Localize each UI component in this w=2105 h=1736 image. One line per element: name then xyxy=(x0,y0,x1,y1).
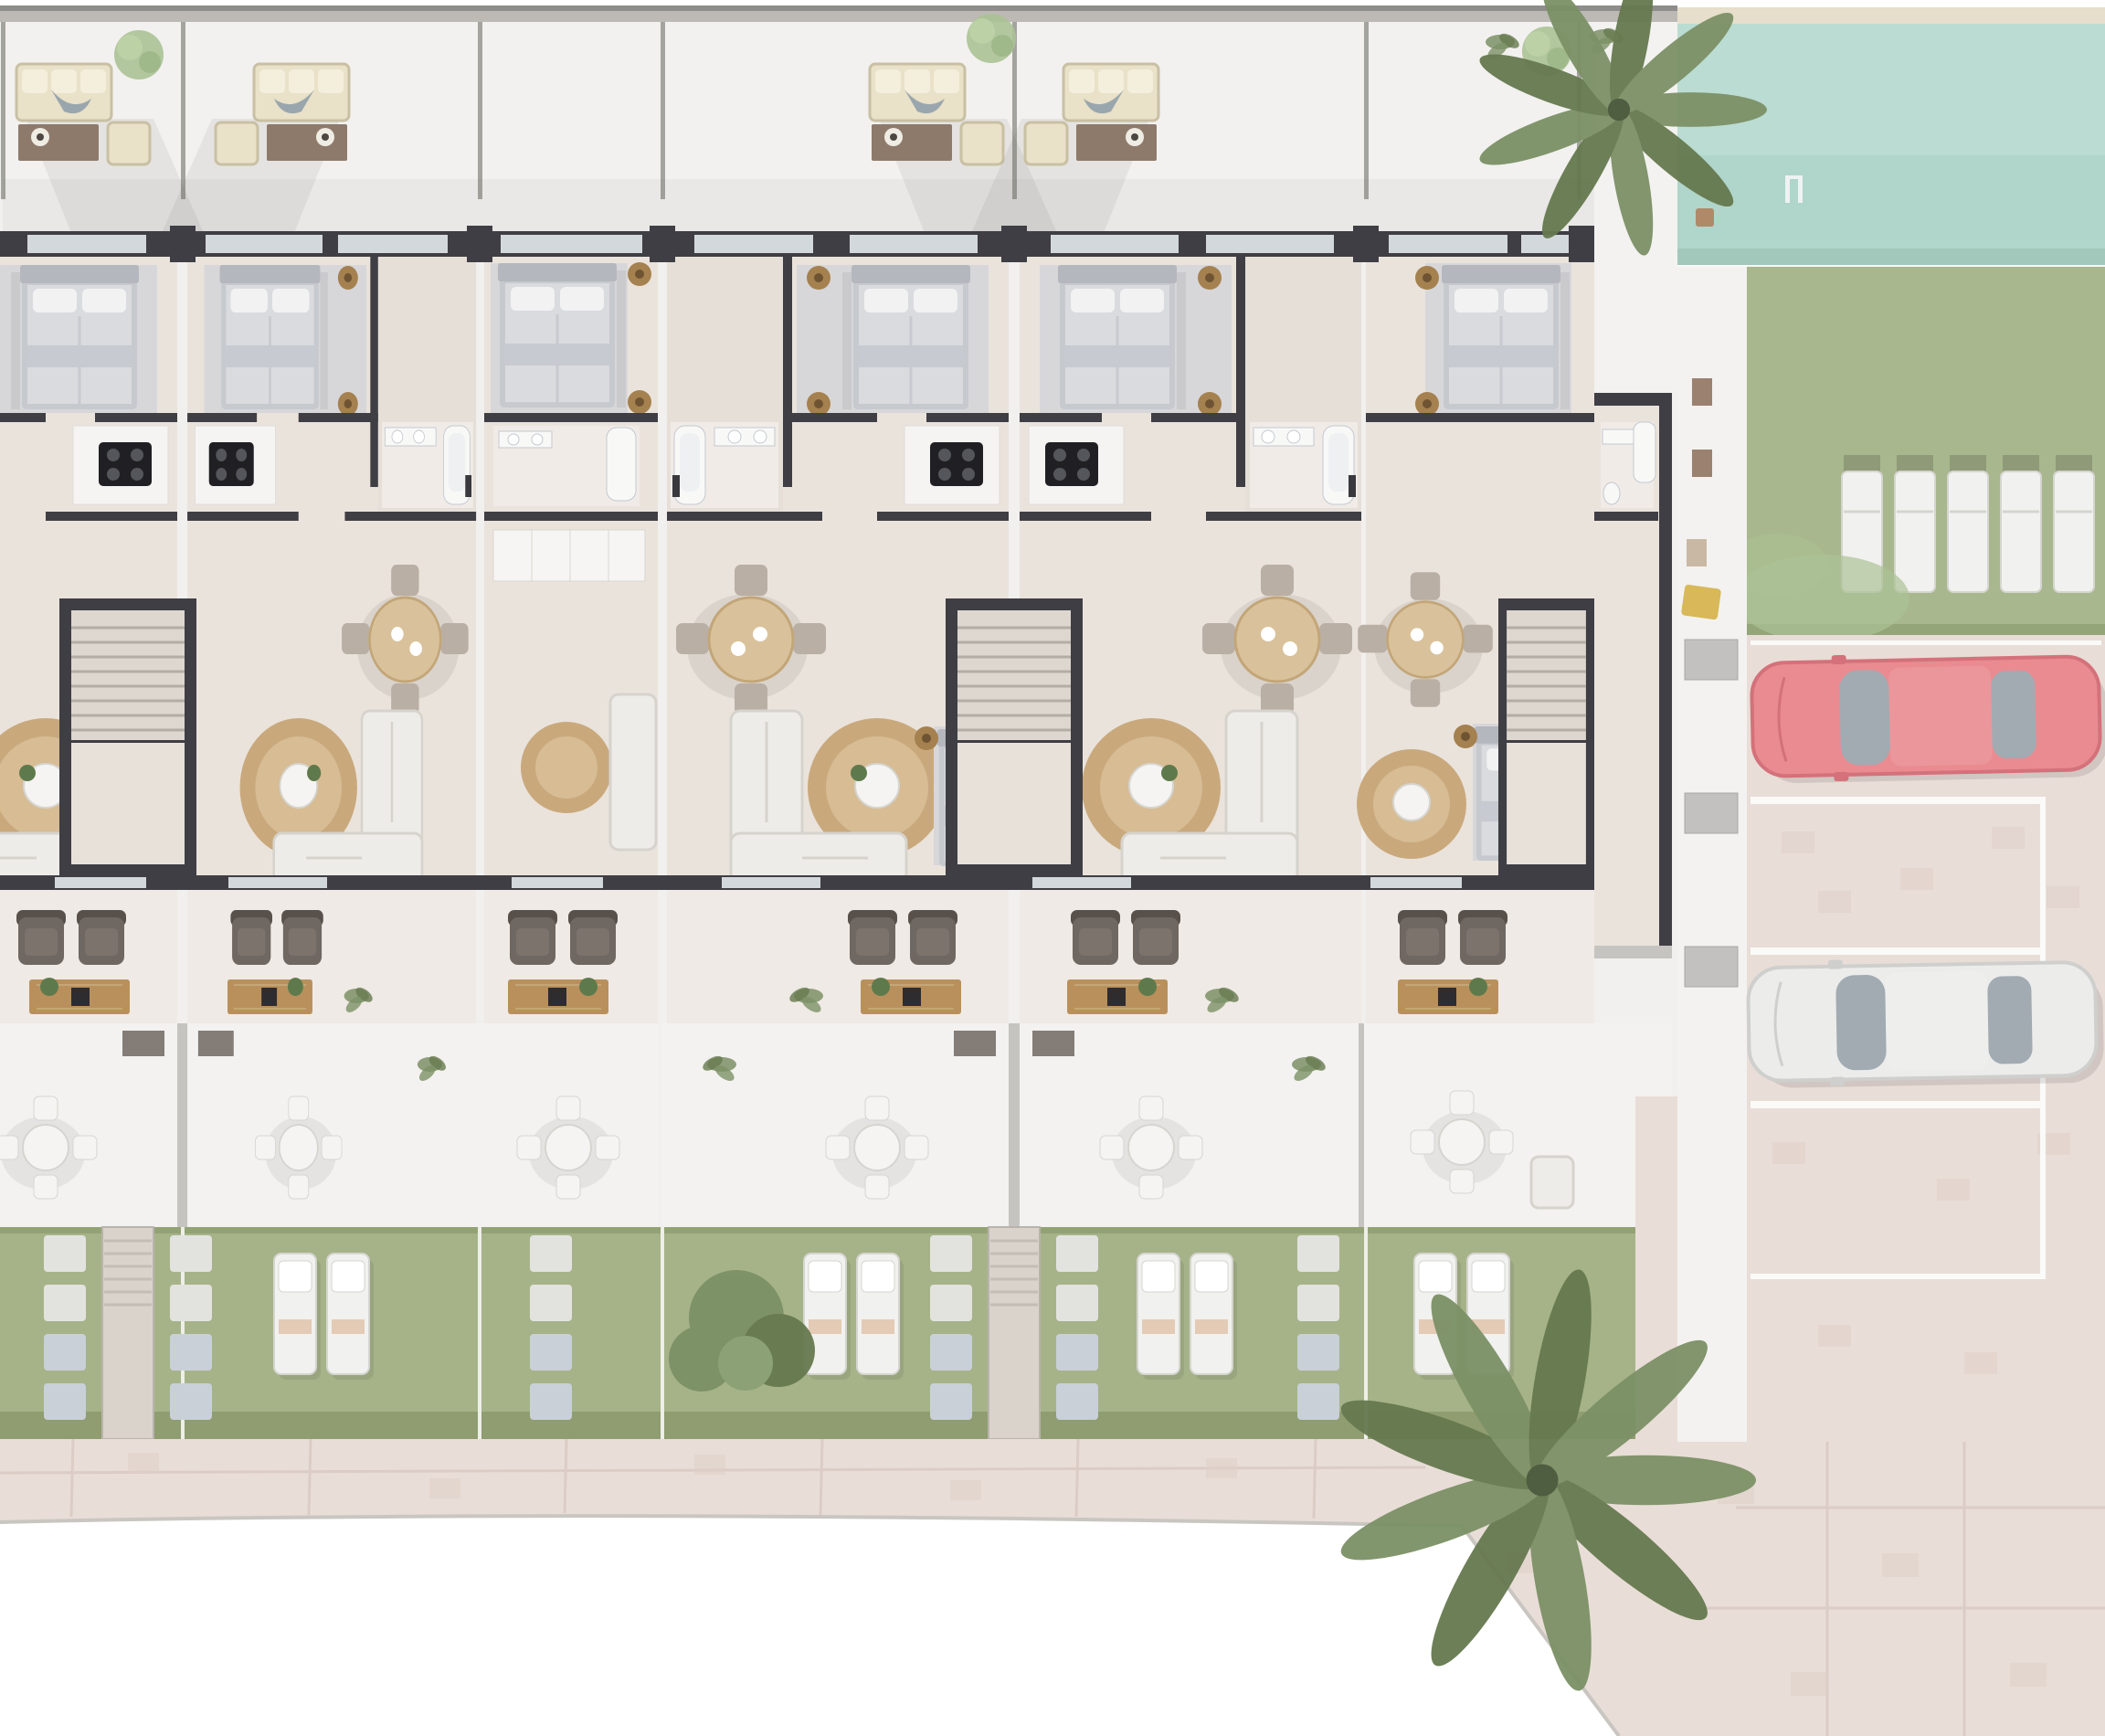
unit-3-middle xyxy=(481,234,658,1227)
parking-area xyxy=(1747,635,2105,1442)
stair-core xyxy=(1498,598,1594,875)
terrace-tree xyxy=(114,30,164,79)
front-terraces xyxy=(1,14,1594,233)
pool-lawn xyxy=(1718,267,2105,642)
side-walkway xyxy=(1677,267,1747,1442)
door-mat xyxy=(1692,378,1712,406)
storage-box xyxy=(1685,640,1738,680)
stair-core xyxy=(59,598,196,875)
patio-sofa xyxy=(1531,1157,1573,1208)
sand-edge xyxy=(1677,7,2105,24)
garden-walkway xyxy=(989,1227,1040,1439)
door-mat xyxy=(1687,539,1707,566)
yellow-mat xyxy=(1681,584,1721,619)
wardrobe xyxy=(493,530,645,581)
side-wing xyxy=(1594,393,1672,958)
bed xyxy=(498,263,626,408)
storage-box xyxy=(1685,947,1738,987)
door-mat xyxy=(1692,450,1712,477)
site-plan-render xyxy=(0,0,2105,1736)
stair-core xyxy=(946,598,1083,875)
garden-walkway xyxy=(102,1227,153,1439)
unit-2 xyxy=(183,234,480,1227)
white-car xyxy=(1748,956,2104,1089)
storage-box xyxy=(1685,793,1738,833)
red-car xyxy=(1751,650,2105,784)
pool-side-table xyxy=(1696,208,1714,227)
terrace-tree xyxy=(967,14,1016,63)
building xyxy=(0,226,1672,1227)
